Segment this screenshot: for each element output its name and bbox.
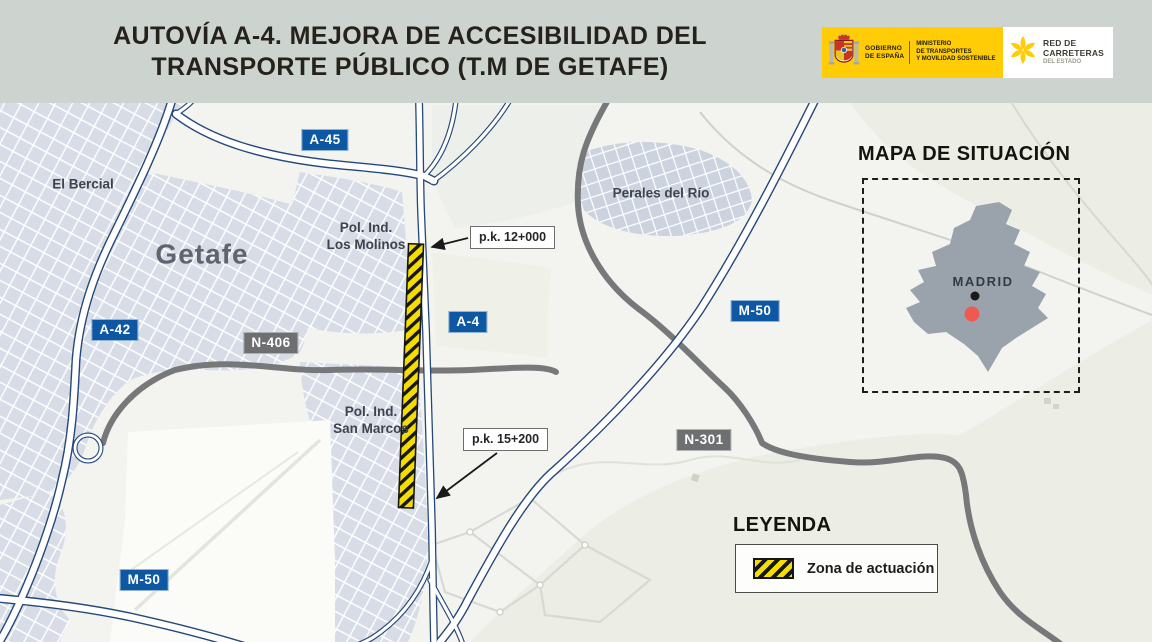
project-map: El Bercial Getafe Pol. Ind. Los Molinos … [0,103,1152,642]
ministerio-text: MINISTERIO DE TRANSPORTES Y MOVILIDAD SO… [909,41,995,64]
project-location-dot [965,307,980,322]
gobierno-de-espana-logo: GOBIERNO DE ESPAÑA MINISTERIO DE TRANSPO… [822,27,1003,78]
label-perales: Perales del Río [613,185,710,202]
label-el-bercial: El Bercial [52,176,114,193]
pk-end-box: p.k. 15+200 [463,428,548,451]
situation-map-inset: MADRID [862,178,1080,393]
legend-box: Zona de actuación [735,544,938,593]
badge-n406: N-406 [243,332,298,354]
page-title: AUTOVÍA A-4. MEJORA DE ACCESIBILIDAD DEL… [30,21,790,83]
label-san-marcos: Pol. Ind. San Marcos [333,403,409,437]
pk-start-box: p.k. 12+000 [470,226,555,249]
badge-a4: A-4 [448,311,487,333]
header-band: AUTOVÍA A-4. MEJORA DE ACCESIBILIDAD DEL… [0,0,1152,105]
badge-m50-southwest: M-50 [120,569,169,591]
airfield-area [110,420,335,642]
star-flower-icon [1008,35,1038,70]
legend-title: LEYENDA [733,514,831,537]
label-getafe: Getafe [155,246,248,263]
badge-a45: A-45 [301,129,348,151]
rce-text: RED DE CARRETERAS DEL ESTADO [1043,39,1104,66]
badge-m50-east: M-50 [731,300,780,322]
situation-map-title: MAPA DE SITUACIÓN [858,143,1070,166]
work-zone-swatch-icon [753,558,794,579]
legend-zona-label: Zona de actuación [807,561,934,577]
red-de-carreteras-logo: RED DE CARRETERAS DEL ESTADO [1003,27,1113,78]
page-title-line2: TRANSPORTE PÚBLICO (T.M DE GETAFE) [30,52,790,83]
madrid-city-dot [971,292,980,301]
spain-coat-of-arms-icon [828,30,860,75]
gobierno-text: GOBIERNO DE ESPAÑA [865,45,904,61]
page-title-line1: AUTOVÍA A-4. MEJORA DE ACCESIBILIDAD DEL [30,21,790,52]
badge-a42: A-42 [91,319,138,341]
label-los-molinos: Pol. Ind. Los Molinos [327,219,406,253]
madrid-city-label: MADRID [953,274,1014,289]
infographic-poster: AUTOVÍA A-4. MEJORA DE ACCESIBILIDAD DEL… [0,0,1152,642]
badge-n301: N-301 [676,429,731,451]
